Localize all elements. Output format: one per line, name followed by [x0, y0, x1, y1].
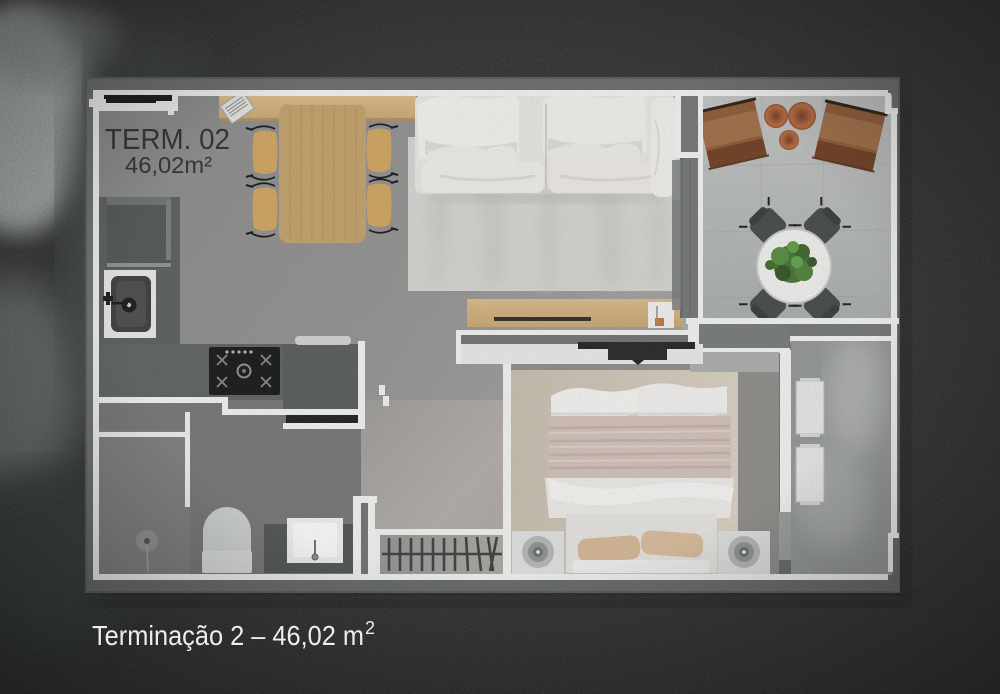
svg-text:2: 2 — [365, 618, 375, 638]
svg-text:Terminação 2 – 46,02 m: Terminação 2 – 46,02 m — [92, 620, 364, 651]
